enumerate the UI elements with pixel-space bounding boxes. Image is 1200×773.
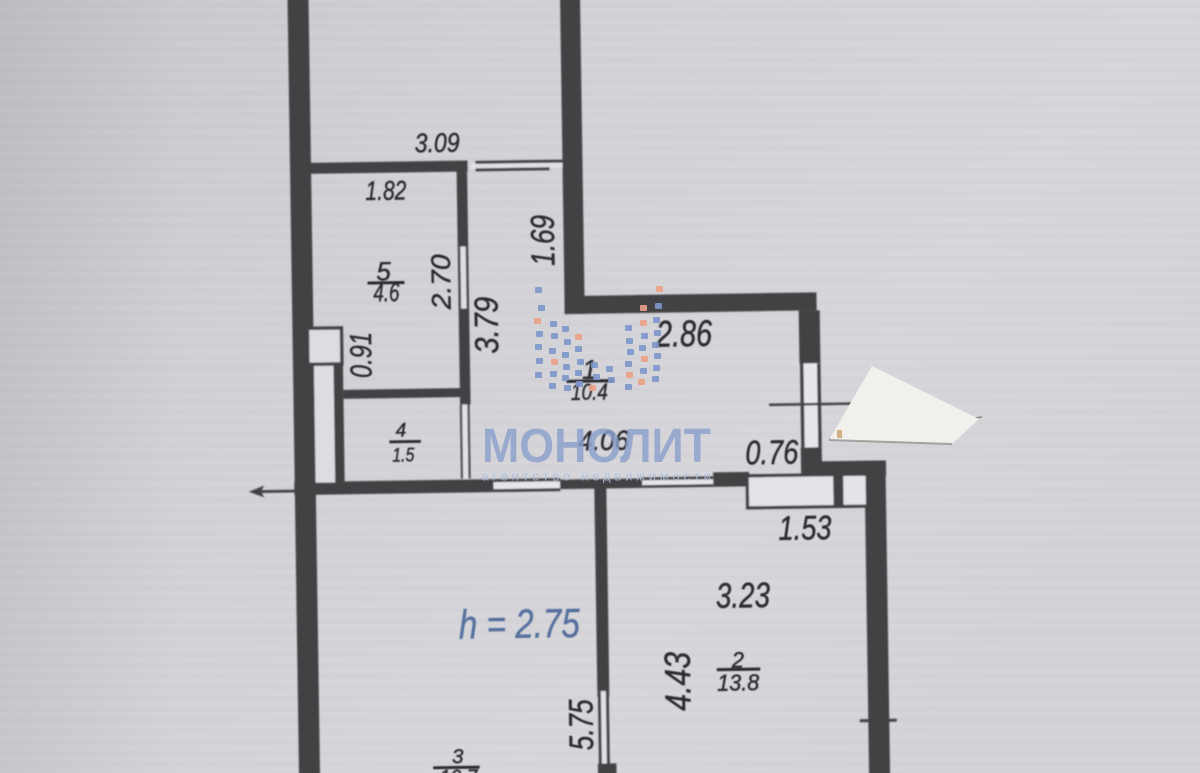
svg-text:агентство недвижимости: агентство недвижимости <box>481 469 714 484</box>
svg-text:1.82: 1.82 <box>365 175 406 206</box>
svg-text:1.69: 1.69 <box>524 215 562 267</box>
svg-text:3.23: 3.23 <box>716 576 771 616</box>
svg-text:0.91: 0.91 <box>343 332 379 379</box>
svg-text:10.7: 10.7 <box>439 765 479 773</box>
svg-text:h = 2.75: h = 2.75 <box>458 600 580 648</box>
svg-text:4.43: 4.43 <box>657 652 699 712</box>
svg-text:МОНОЛИТ: МОНОЛИТ <box>482 420 711 473</box>
svg-text:2.70: 2.70 <box>426 254 457 310</box>
svg-text:4: 4 <box>395 420 406 441</box>
svg-text:1.53: 1.53 <box>778 509 832 548</box>
svg-text:1.5: 1.5 <box>392 445 415 466</box>
svg-text:5.75: 5.75 <box>562 699 601 751</box>
svg-text:2.86: 2.86 <box>655 313 713 355</box>
svg-text:3.09: 3.09 <box>414 128 459 159</box>
svg-text:4.6: 4.6 <box>373 277 400 307</box>
svg-text:13.8: 13.8 <box>717 669 760 696</box>
svg-text:0.76: 0.76 <box>745 434 799 473</box>
svg-text:3.79: 3.79 <box>467 296 505 354</box>
